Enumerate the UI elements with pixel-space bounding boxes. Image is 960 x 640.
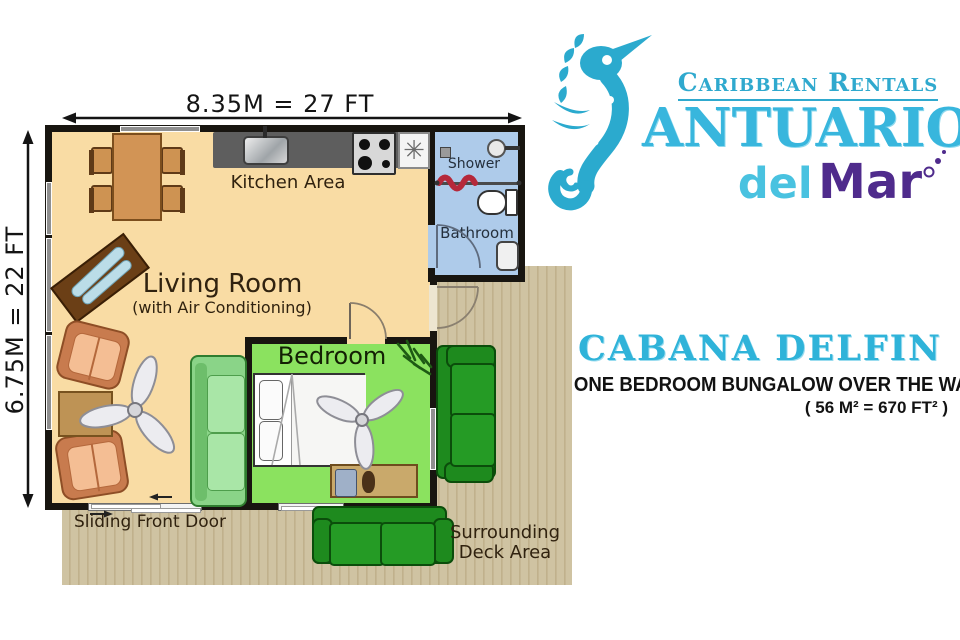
deck-door — [437, 287, 478, 328]
sliding-door-label: Sliding Front Door — [70, 514, 230, 532]
bedroom-door — [350, 303, 386, 339]
ceiling-fan-icon — [314, 385, 408, 470]
listing-subtitle: ONE BEDROOM BUNGALOW OVER THE WATER — [574, 374, 942, 397]
plant-icon — [398, 341, 431, 374]
listing-title: CABANA DELFIN — [570, 328, 950, 369]
brand-mar: Mar — [818, 154, 922, 210]
shower-curtain-icon — [439, 178, 475, 189]
floorplan-flyer: ✳ Kitchen Area Living Room (with Air Con… — [0, 0, 960, 640]
seahorse-logo-icon — [552, 34, 652, 204]
blanket-fold — [272, 374, 300, 465]
rod-end — [435, 181, 440, 186]
ceiling-fan-icon — [78, 354, 180, 459]
bathroom-door — [437, 225, 480, 268]
height-dimension-label: 6.75M = 22 FT — [1, 225, 29, 415]
width-dimension-label: 8.35M = 27 FT — [130, 90, 430, 118]
brand-del: del — [738, 159, 813, 209]
deck-label-line1: Surrounding — [438, 524, 572, 543]
brand-name: ANTUARIOS — [642, 97, 960, 159]
listing-area: ( 56 M² = 670 FT² ) — [560, 398, 948, 418]
deck-label-line2: Deck Area — [438, 544, 572, 563]
rod-end — [517, 181, 522, 186]
brand-delmar: del Mar — [700, 154, 922, 210]
